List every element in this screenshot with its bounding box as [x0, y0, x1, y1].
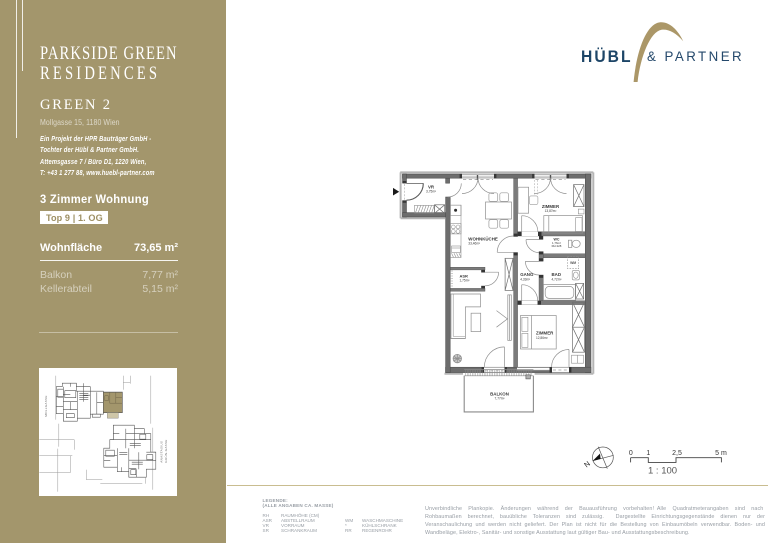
- svg-text:RH:228: RH:228: [552, 244, 562, 248]
- svg-text:1,75m²: 1,75m²: [460, 279, 470, 283]
- svg-text:0: 0: [629, 450, 633, 457]
- svg-text:GRÜN-GASSE: GRÜN-GASSE: [163, 440, 167, 463]
- svg-text:3,75m²: 3,75m²: [426, 190, 436, 194]
- svg-text:5 m: 5 m: [715, 450, 727, 457]
- svg-text:1 : 100: 1 : 100: [648, 466, 677, 477]
- svg-text:N: N: [582, 459, 592, 469]
- svg-text:MOLLGASSE: MOLLGASSE: [43, 396, 47, 417]
- svg-text:12,86m²: 12,86m²: [536, 336, 548, 340]
- svg-text:13,87m²: 13,87m²: [545, 209, 557, 213]
- svg-text:4,33m²: 4,33m²: [520, 277, 530, 281]
- svg-text:33,46m²: 33,46m²: [468, 242, 480, 246]
- svg-text:2,5: 2,5: [672, 450, 682, 457]
- svg-text:4,72m²: 4,72m²: [552, 277, 562, 281]
- svg-text:7,77m²: 7,77m²: [495, 396, 505, 400]
- svg-text:WM: WM: [570, 261, 576, 265]
- svg-text:1: 1: [646, 450, 650, 457]
- svg-text:ANASTASIUS: ANASTASIUS: [159, 441, 163, 463]
